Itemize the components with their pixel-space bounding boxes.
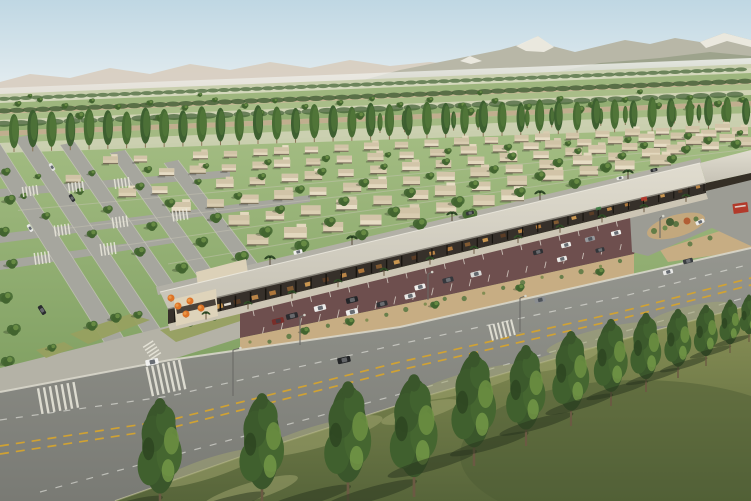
yard-tree xyxy=(139,248,144,253)
yard-tree xyxy=(147,167,150,170)
farm-tree xyxy=(150,100,153,103)
hedgerow xyxy=(460,78,472,82)
hedgerow xyxy=(526,76,538,80)
house-roof xyxy=(533,151,548,155)
hedgerow xyxy=(75,94,87,98)
hedgerow xyxy=(166,101,181,106)
hedgerow xyxy=(196,89,208,93)
house-roof xyxy=(671,133,685,137)
median-shrub xyxy=(365,319,368,322)
hedgerow xyxy=(647,82,662,87)
median-shrub xyxy=(267,340,271,344)
farm-tree xyxy=(372,97,374,99)
foreground-tree-highlight xyxy=(264,455,277,478)
poplar-highlight xyxy=(256,108,263,134)
hedgerow xyxy=(273,86,285,90)
house-ground-shadow xyxy=(498,162,507,164)
hedgerow xyxy=(543,86,558,91)
hedgerow xyxy=(75,105,90,110)
house-ground-shadow xyxy=(396,219,407,221)
foreground-tree xyxy=(697,326,703,338)
house-roof xyxy=(622,143,637,147)
house-roof xyxy=(470,167,489,172)
house-ground-shadow xyxy=(522,150,530,152)
house-roof xyxy=(424,140,438,144)
hedgerow xyxy=(493,77,505,81)
house-ground-shadow xyxy=(283,238,294,240)
house-roof xyxy=(367,153,383,157)
poplar-highlight xyxy=(87,112,94,139)
poplar-highlight xyxy=(68,115,74,140)
yard-tree xyxy=(621,153,624,156)
hedgerow xyxy=(119,92,131,96)
house-roof xyxy=(437,172,455,177)
hedgerow xyxy=(569,85,584,90)
yard-tree xyxy=(605,163,610,168)
median-shrub xyxy=(578,269,583,274)
hedgerow xyxy=(416,80,428,84)
house-roof xyxy=(454,138,469,142)
hedgerow xyxy=(348,94,363,99)
median-shrub xyxy=(599,265,602,268)
yard-tree xyxy=(445,159,448,162)
hedgerow xyxy=(309,96,324,101)
hedgerow xyxy=(669,70,681,74)
yard-tree xyxy=(206,164,209,167)
hedgerow xyxy=(686,81,701,86)
farm-tree xyxy=(40,98,42,100)
median-shrub xyxy=(462,296,467,301)
house-roof xyxy=(514,135,528,139)
house-roof xyxy=(654,140,670,144)
poplar-highlight xyxy=(526,111,529,123)
farm-tree xyxy=(359,113,363,117)
house-ground-shadow xyxy=(700,150,708,152)
hedgerow xyxy=(240,87,252,91)
house-roof xyxy=(274,147,289,151)
palm-crown xyxy=(337,280,339,282)
hedgerow xyxy=(504,77,516,81)
yard-tree xyxy=(321,169,325,173)
house-roof xyxy=(608,136,623,140)
house-roof xyxy=(685,126,699,130)
street-tree xyxy=(9,196,14,201)
house-ground-shadow xyxy=(303,153,310,155)
farm-tree xyxy=(742,97,745,100)
house-ground-shadow xyxy=(273,155,281,157)
yard-tree xyxy=(628,137,631,140)
tall-palm-crown xyxy=(351,236,353,238)
yard-tree xyxy=(181,264,186,269)
foreground-tree xyxy=(634,340,642,356)
poplar-highlight xyxy=(669,100,675,121)
house-ground-shadow xyxy=(435,181,444,183)
yard-tree xyxy=(740,131,743,134)
farm-tree xyxy=(92,99,94,101)
median-shrub xyxy=(708,236,713,241)
house-ground-shadow xyxy=(606,144,614,146)
foreground-tree xyxy=(703,305,709,314)
house-roof xyxy=(284,227,307,233)
median-shrub xyxy=(482,292,485,295)
hedgerow xyxy=(257,98,272,103)
house-ground-shadow xyxy=(264,220,273,222)
house-roof xyxy=(468,157,484,161)
house-roof xyxy=(310,187,327,191)
yard-tree xyxy=(325,156,328,159)
yard-tree xyxy=(388,153,391,156)
hedgerow xyxy=(153,102,168,107)
house-roof xyxy=(566,133,579,136)
house-ground-shadow xyxy=(578,175,587,177)
hedgerow xyxy=(482,77,494,81)
house-ground-shadow xyxy=(491,152,498,154)
poplar-highlight xyxy=(500,104,506,127)
hedgerow xyxy=(608,84,623,89)
house-ground-shadow xyxy=(132,162,139,164)
hedgerow xyxy=(284,85,296,89)
foreground-tree xyxy=(245,433,257,456)
foreground-tree xyxy=(395,416,407,441)
foreground-tree-highlight xyxy=(164,427,179,455)
house-ground-shadow xyxy=(407,200,417,202)
hedgerow xyxy=(556,86,571,91)
hedgerow xyxy=(328,84,340,88)
plaza-tree xyxy=(137,312,141,316)
hedgerow xyxy=(592,73,604,77)
palm-crown xyxy=(383,268,385,270)
house-roof xyxy=(222,164,236,168)
hedgerow xyxy=(296,96,311,101)
house-roof xyxy=(360,215,381,221)
median-shrub xyxy=(559,275,563,279)
foreground-tree-highlight xyxy=(614,341,625,362)
hedgerow xyxy=(537,75,549,79)
aerial-rendering-stage: Aerial rendering of a desert residential… xyxy=(0,0,751,501)
yard-tree xyxy=(671,156,675,160)
farm-tree xyxy=(717,101,720,104)
foreground-tree-highlight xyxy=(266,422,281,450)
house-roof xyxy=(625,129,640,133)
poplar-highlight xyxy=(453,113,456,126)
house-ground-shadow xyxy=(366,189,376,191)
house-roof xyxy=(119,188,137,193)
foreground-tree xyxy=(722,318,727,329)
house-ground-shadow xyxy=(308,196,316,198)
hedgerow xyxy=(471,78,483,82)
farm-tree xyxy=(245,103,248,106)
yard-tree xyxy=(279,206,283,210)
street-light-head xyxy=(662,215,665,218)
hedgerow xyxy=(405,81,417,85)
foreground-tree-highlight xyxy=(647,355,656,371)
hedgerow xyxy=(306,85,318,89)
house-roof xyxy=(216,179,234,184)
house-ground-shadow xyxy=(170,211,180,213)
hedgerow xyxy=(141,91,153,95)
palm-crown xyxy=(559,225,561,227)
house-roof xyxy=(656,128,669,131)
palm-crown xyxy=(473,246,475,248)
foreground-tree xyxy=(143,437,155,460)
yard-tree xyxy=(201,238,206,243)
hedgerow xyxy=(673,81,688,86)
hedgerow xyxy=(36,107,51,112)
island-shrub xyxy=(651,228,657,234)
foreground-tree xyxy=(408,374,420,391)
hedgerow xyxy=(710,92,727,98)
yard-tree xyxy=(301,241,307,247)
house-roof xyxy=(66,175,81,179)
hedgerow xyxy=(570,74,582,78)
hedgerow xyxy=(727,92,744,98)
house-roof xyxy=(395,142,408,145)
foreground-tree xyxy=(557,364,567,383)
hedgerow xyxy=(10,108,25,113)
yard-tree xyxy=(643,143,646,146)
hedgerow xyxy=(735,67,747,71)
farm-tree xyxy=(118,104,121,107)
house-roof xyxy=(435,185,456,190)
house-ground-shadow xyxy=(369,174,377,176)
house-ground-shadow xyxy=(248,185,256,187)
hedgerow xyxy=(712,80,727,85)
hedgerow xyxy=(108,92,120,96)
poplar-highlight xyxy=(575,104,580,125)
street-tree xyxy=(13,325,18,330)
poplar-highlight xyxy=(125,114,131,138)
hedgerow xyxy=(400,92,415,97)
hedgerow xyxy=(383,81,395,85)
yard-tree xyxy=(419,219,424,224)
house-ground-shadow xyxy=(337,177,345,179)
poplar-highlight xyxy=(707,98,713,120)
yard-tree xyxy=(329,218,334,223)
hedgerow xyxy=(229,88,241,92)
house-roof xyxy=(507,176,527,181)
yard-tree xyxy=(393,208,398,213)
yard-tree xyxy=(511,153,515,157)
hedgerow xyxy=(647,71,659,75)
median-shrub xyxy=(688,242,693,247)
patio-umbrella xyxy=(168,296,171,299)
hedgerow xyxy=(449,79,461,83)
hedgerow xyxy=(394,81,406,85)
median-shrub xyxy=(326,324,330,328)
foreground-tree xyxy=(457,391,469,414)
yard-tree xyxy=(38,174,41,177)
house-ground-shadow xyxy=(544,148,552,150)
palm-crown xyxy=(643,205,645,207)
poplar-highlight xyxy=(30,113,37,140)
house-ground-shadow xyxy=(227,225,237,227)
yard-tree xyxy=(241,252,246,257)
patio-umbrella xyxy=(175,304,178,307)
hedgerow xyxy=(625,72,637,76)
island-shrub xyxy=(666,218,674,226)
house-roof xyxy=(397,208,420,214)
hedgerow xyxy=(218,99,233,104)
house-roof xyxy=(282,174,298,178)
poplar-highlight xyxy=(12,117,18,142)
hedgerow xyxy=(636,71,648,75)
house-ground-shadow xyxy=(513,142,520,144)
yard-tree xyxy=(198,179,201,182)
monument-sign xyxy=(732,202,748,214)
house-ground-shadow xyxy=(192,159,200,161)
poplar-highlight xyxy=(650,99,656,122)
yard-tree xyxy=(707,137,711,141)
farm-tree xyxy=(430,97,433,100)
house-roof xyxy=(545,140,561,144)
house-ground-shadow xyxy=(305,165,312,167)
hedgerow xyxy=(251,87,263,91)
hedgerow xyxy=(339,83,351,87)
house-roof xyxy=(337,156,352,160)
hedgerow xyxy=(361,82,373,86)
hedgerow xyxy=(127,103,142,108)
farm-tree xyxy=(625,97,628,100)
house-ground-shadow xyxy=(335,210,345,212)
foreground-tree xyxy=(154,398,166,414)
yard-tree xyxy=(361,230,366,235)
poplar-highlight xyxy=(143,110,150,137)
house-ground-shadow xyxy=(718,142,726,144)
tall-palm-crown xyxy=(627,170,629,172)
hedgerow xyxy=(725,79,740,84)
house-ground-shadow xyxy=(102,164,110,166)
yard-tree xyxy=(384,164,387,167)
foreground-tree xyxy=(342,381,354,398)
house-ground-shadow xyxy=(541,180,551,182)
house-ground-shadow xyxy=(532,159,540,161)
poplar-highlight xyxy=(425,104,431,128)
hedgerow xyxy=(621,83,636,88)
house-ground-shadow xyxy=(215,188,224,190)
yard-tree xyxy=(519,188,524,193)
yard-tree xyxy=(457,197,462,202)
median-tree xyxy=(599,269,603,273)
house-ground-shadow xyxy=(239,204,248,206)
hedgerow xyxy=(231,99,246,104)
foreground-tree-highlight xyxy=(528,399,539,419)
house-roof xyxy=(524,142,539,146)
hedgerow xyxy=(680,70,692,74)
foreground-tree-highlight xyxy=(352,412,368,441)
house-roof xyxy=(224,151,237,154)
street-tree xyxy=(7,357,12,362)
hedgerow xyxy=(691,69,703,73)
house-ground-shadow xyxy=(300,215,310,217)
hedgerow xyxy=(53,95,65,99)
foreground-tree xyxy=(642,313,650,324)
house-ground-shadow xyxy=(471,191,480,193)
house-ground-shadow xyxy=(220,171,227,173)
house-ground-shadow xyxy=(359,225,370,227)
house-roof xyxy=(485,137,498,140)
hedgerow xyxy=(595,84,610,89)
plaza-tree xyxy=(51,345,55,349)
street-tree xyxy=(11,260,16,265)
foreground-tree-highlight xyxy=(478,380,493,408)
yard-tree xyxy=(107,206,111,210)
house-roof xyxy=(639,134,655,138)
hedgerow xyxy=(699,80,714,85)
hedgerow xyxy=(372,82,384,86)
hedgerow xyxy=(659,94,676,100)
house-roof xyxy=(588,145,606,150)
house-roof xyxy=(306,158,320,162)
foreground-tree-highlight xyxy=(574,355,586,378)
house-roof xyxy=(274,160,290,164)
house-roof xyxy=(577,139,591,143)
poplar-highlight xyxy=(594,101,600,124)
yard-tree xyxy=(557,159,561,163)
palm-crown xyxy=(247,302,249,304)
house-ground-shadow xyxy=(158,176,166,178)
hedgerow xyxy=(218,88,230,92)
yard-tree xyxy=(448,149,451,152)
yard-tree xyxy=(429,173,432,176)
poplar-highlight xyxy=(369,105,375,130)
house-ground-shadow xyxy=(429,156,437,158)
median-shrub xyxy=(424,303,427,306)
poplar-highlight xyxy=(162,112,168,137)
house-ground-shadow xyxy=(435,212,445,214)
street-tree xyxy=(5,169,9,173)
house-roof xyxy=(334,145,348,149)
hedgerow xyxy=(548,75,560,79)
house-ground-shadow xyxy=(423,147,430,149)
hedgerow xyxy=(491,88,506,93)
house-ground-shadow xyxy=(251,169,259,171)
house-ground-shadow xyxy=(280,182,288,184)
house-ground-shadow xyxy=(246,245,257,247)
farm-tree xyxy=(30,94,32,96)
yard-tree xyxy=(343,198,347,202)
poplar-highlight xyxy=(463,106,469,128)
poplar-highlight xyxy=(406,108,412,130)
foreground-tree xyxy=(675,309,682,319)
median-tree xyxy=(434,302,438,306)
house-roof xyxy=(473,195,494,201)
yard-tree xyxy=(92,171,95,174)
hedgerow xyxy=(387,93,402,98)
foreground-tree xyxy=(607,319,616,331)
house-ground-shadow xyxy=(188,173,196,175)
house-ground-shadow xyxy=(273,200,283,202)
poplar-highlight xyxy=(181,113,187,137)
patio-umbrella xyxy=(198,306,201,309)
foreground-tree xyxy=(468,351,480,367)
poplar-highlight xyxy=(379,114,382,127)
palm-crown xyxy=(205,312,207,314)
poplar-highlight xyxy=(237,112,243,135)
tall-palm-crown xyxy=(451,212,453,214)
farm-tree xyxy=(469,109,473,113)
foreground-tree xyxy=(742,311,747,321)
hedgerow xyxy=(192,100,207,105)
house-ground-shadow xyxy=(398,159,405,161)
house-roof xyxy=(134,156,147,159)
house-ground-shadow xyxy=(222,157,229,159)
yard-tree xyxy=(735,141,739,145)
house-roof xyxy=(305,147,318,150)
house-ground-shadow xyxy=(483,143,490,145)
yard-tree xyxy=(261,174,264,177)
hedgerow xyxy=(426,91,441,96)
poplar-highlight xyxy=(613,102,619,124)
